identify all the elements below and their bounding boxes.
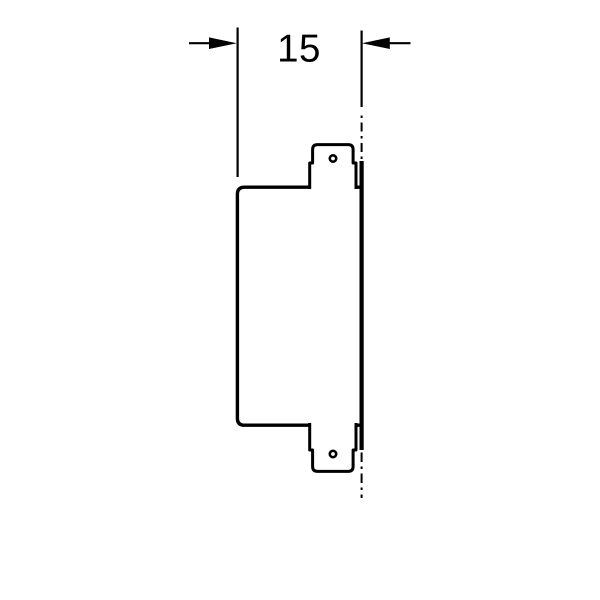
dimension-arrowhead-left: [209, 37, 237, 49]
panel-body-group: [237, 161, 361, 450]
fixture-side-view-drawing: 15: [0, 0, 600, 600]
dimension-annotation: 15: [189, 28, 411, 178]
mounting-lug-bottom-fill: [310, 423, 356, 471]
screw-hole-top: [330, 155, 336, 161]
panel-body-outline: [237, 187, 361, 425]
screw-hole-bottom: [330, 451, 336, 457]
mounting-lug-top-fill: [310, 145, 356, 189]
mounting-lug-top: [310, 145, 356, 189]
mounting-lug-bottom: [310, 423, 356, 471]
dimension-arrowhead-right: [362, 37, 390, 49]
dimension-label: 15: [277, 28, 321, 71]
technical-drawing-canvas: 15: [0, 0, 600, 600]
